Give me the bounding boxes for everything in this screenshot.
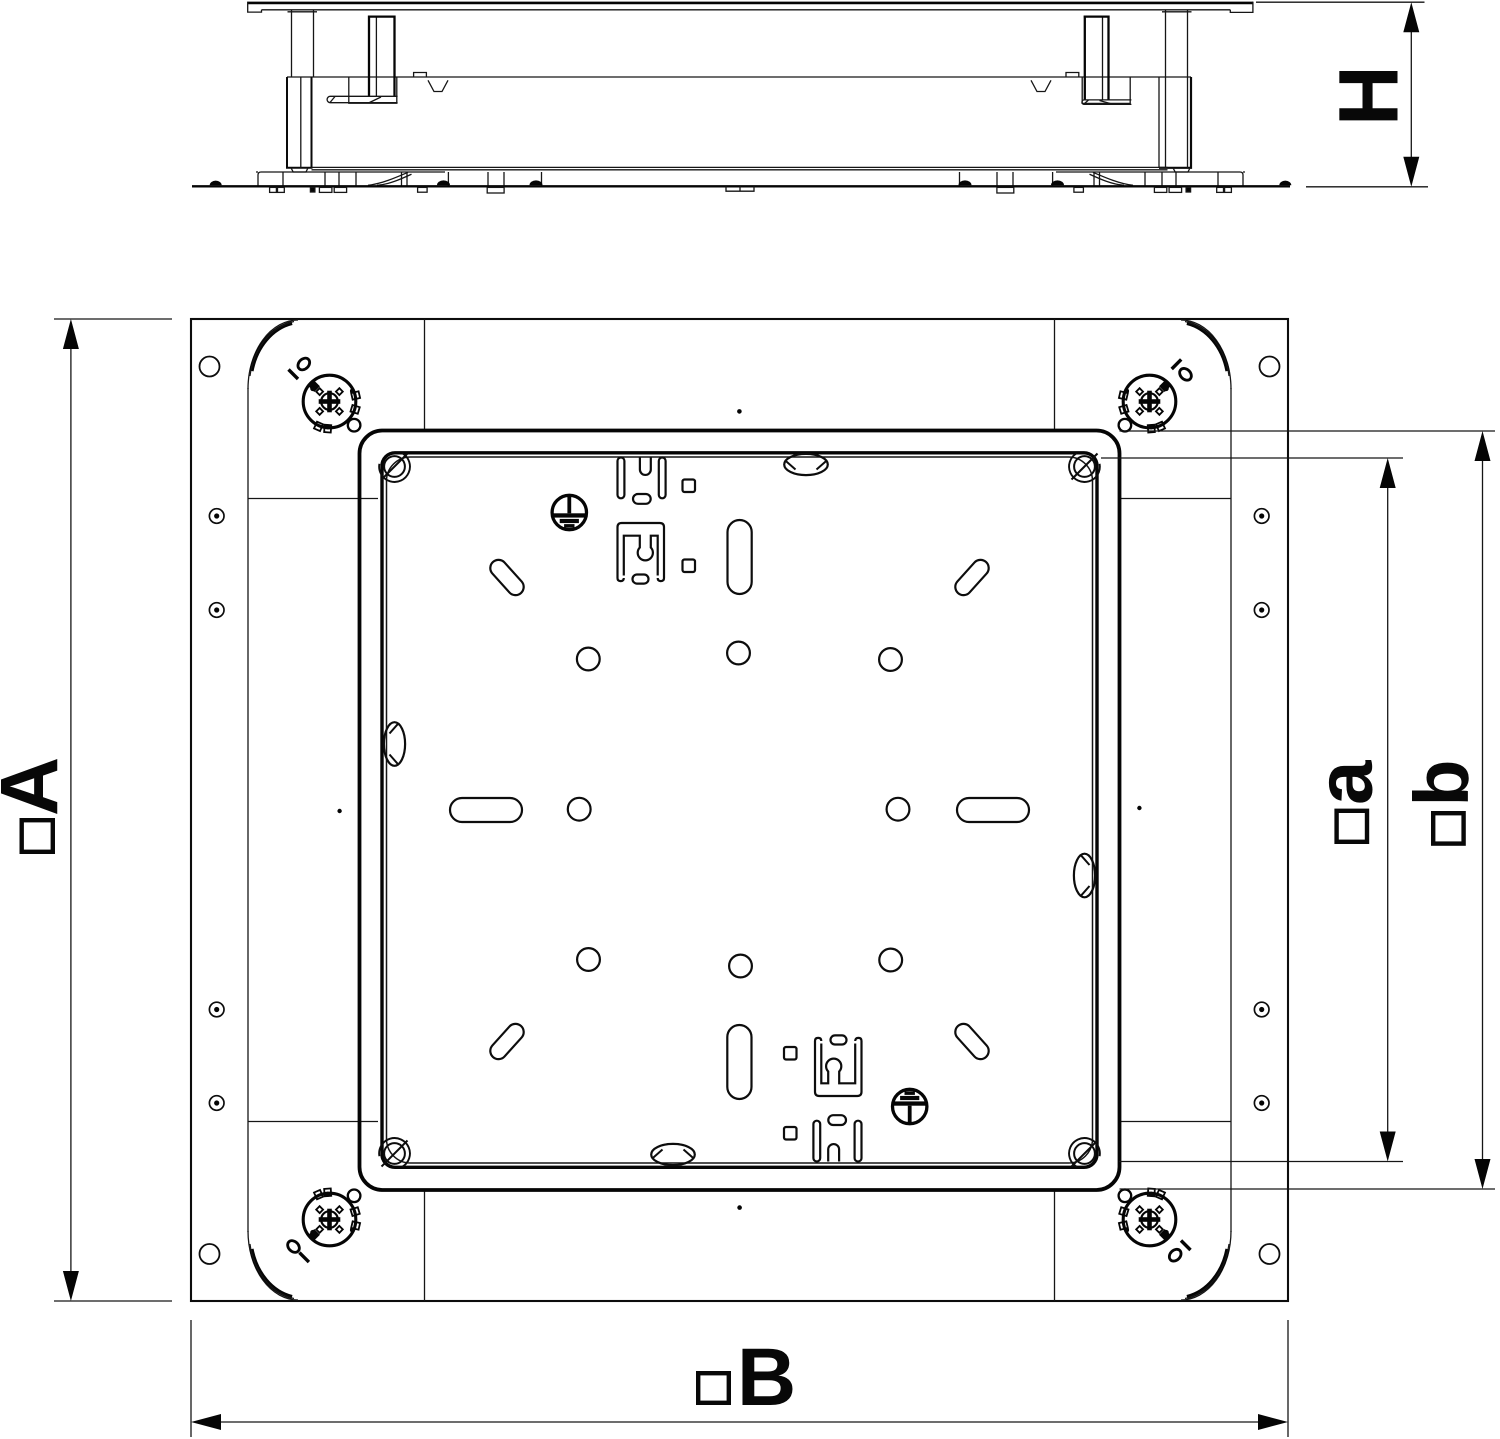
svg-text:H: H <box>1322 65 1416 126</box>
svg-text:a: a <box>1300 760 1389 805</box>
svg-text:A: A <box>0 757 76 816</box>
svg-text:B: B <box>737 1332 796 1423</box>
svg-text:b: b <box>1399 759 1485 806</box>
